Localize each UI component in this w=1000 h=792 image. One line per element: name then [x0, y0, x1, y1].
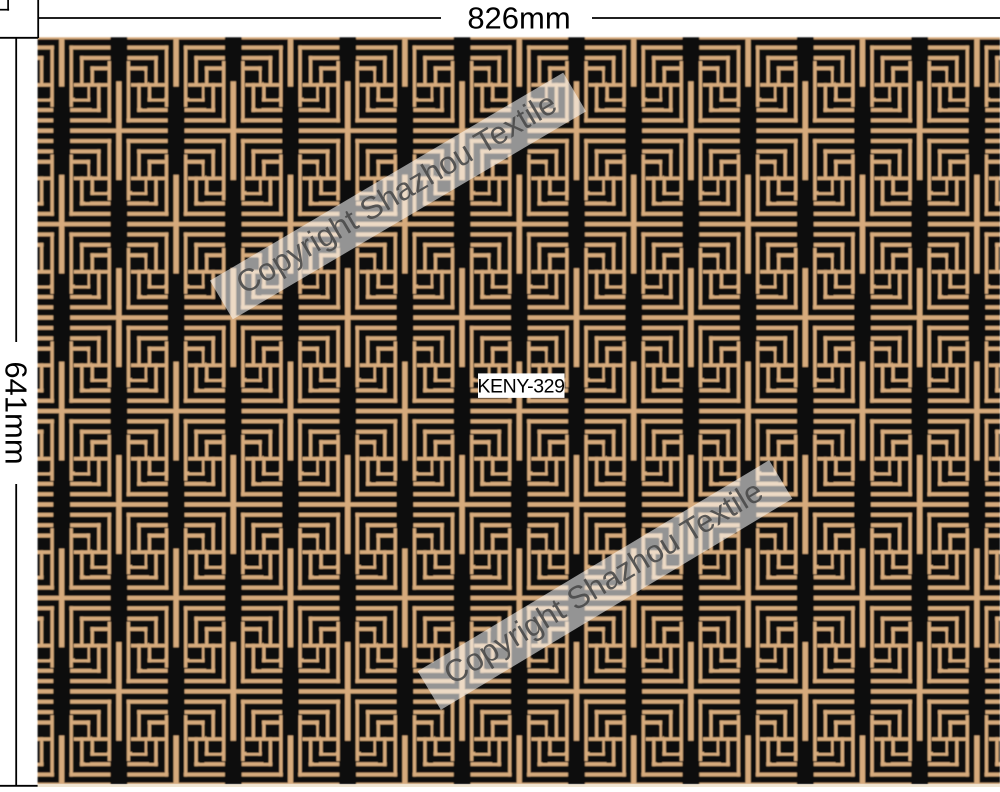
svg-text:641mm: 641mm [0, 361, 34, 464]
svg-text:KENY-329: KENY-329 [477, 376, 564, 398]
svg-text:826mm: 826mm [467, 1, 570, 36]
